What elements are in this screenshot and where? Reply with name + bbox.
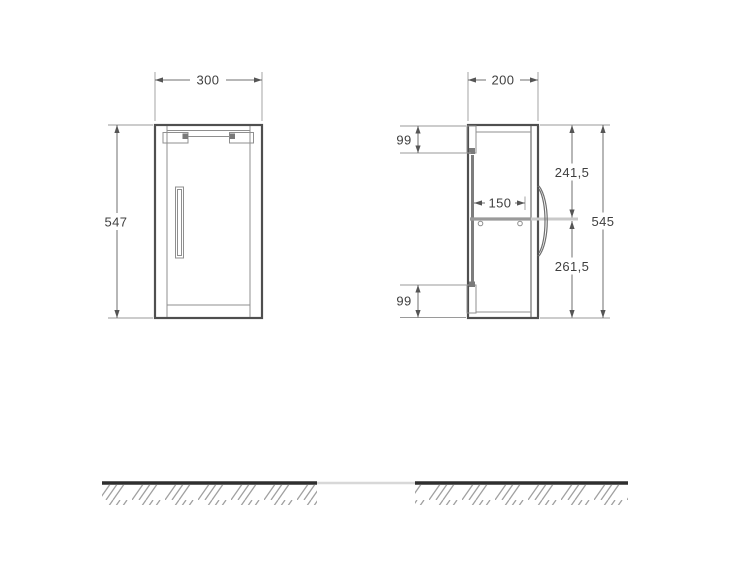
dim-front-height: 547 <box>98 125 153 318</box>
bottom-offset-label: 99 <box>396 294 411 309</box>
dim-total-height: 545 <box>540 125 622 318</box>
front-cabinet-outline <box>155 125 262 318</box>
ground-hatch-right <box>415 485 628 505</box>
top-offset-label: 99 <box>396 133 411 148</box>
dim-front-width: 300 <box>155 71 262 121</box>
total-height-label: 545 <box>592 214 615 229</box>
side-cabinet-outline <box>468 125 538 318</box>
ground-line-left <box>102 483 317 505</box>
dim-lower-span: 261,5 <box>552 221 592 318</box>
front-view <box>155 125 262 318</box>
technical-drawing-page: 300 547 <box>0 0 750 571</box>
front-width-label: 300 <box>197 73 220 88</box>
dim-side-depth: 200 <box>468 71 538 121</box>
upper-span-label: 241,5 <box>555 165 590 180</box>
ground-line-right <box>415 483 628 505</box>
dim-upper-span: 241,5 <box>552 125 592 218</box>
front-height-label: 547 <box>105 215 128 230</box>
dim-bottom-offset: 99 <box>396 285 469 318</box>
side-view <box>467 125 578 318</box>
lower-span-label: 261,5 <box>555 259 590 274</box>
dim-top-offset: 99 <box>396 126 471 153</box>
shelf-depth-label: 150 <box>489 196 512 211</box>
ground-hatch-left <box>102 485 317 505</box>
cabinet-technical-drawing: 300 547 <box>0 0 750 571</box>
side-depth-label: 200 <box>492 73 515 88</box>
